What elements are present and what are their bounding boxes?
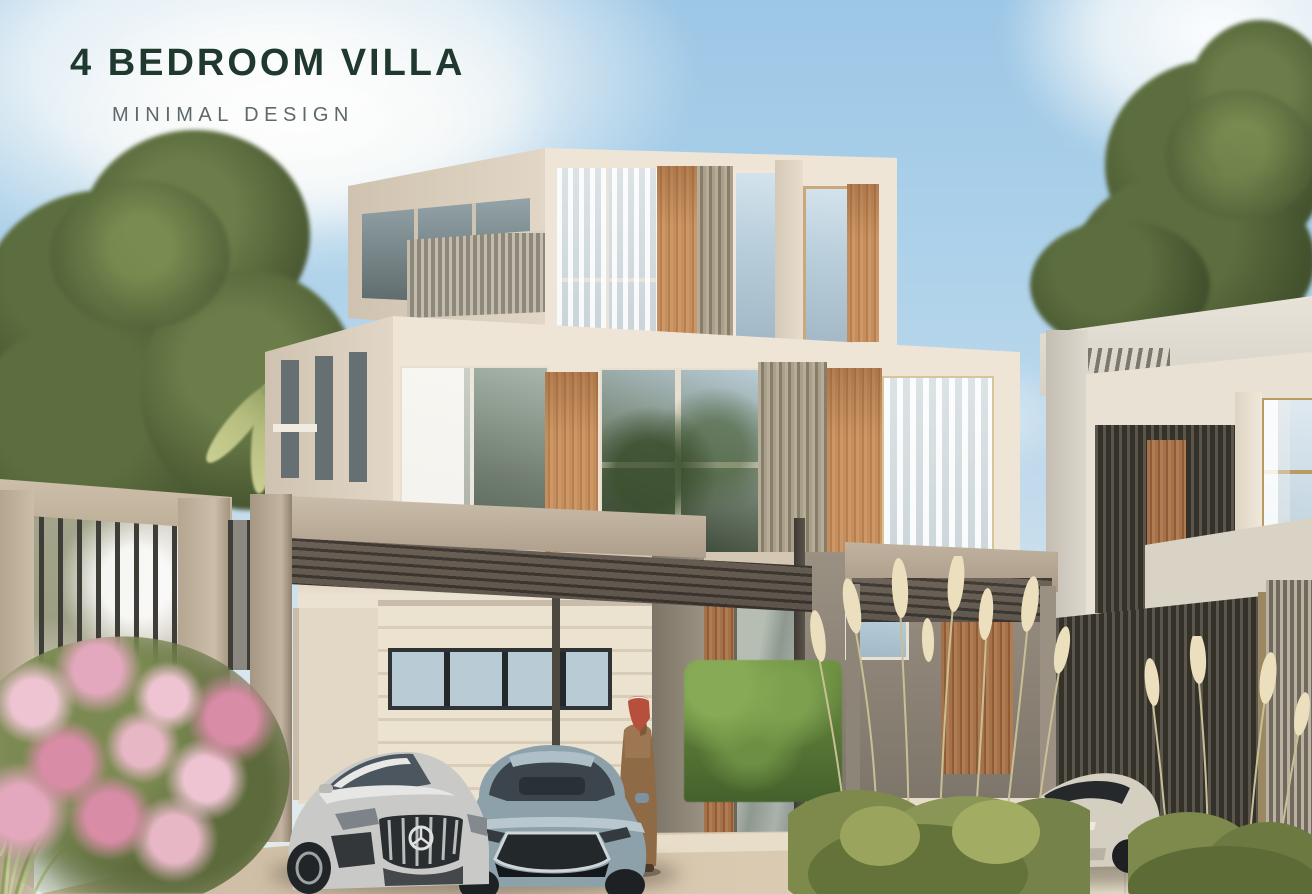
page-subtitle: MINIMAL DESIGN: [112, 104, 354, 127]
pampas-mounds: [1128, 812, 1312, 894]
architectural-render: 4 BEDROOM VILLA MINIMAL DESIGN: [0, 0, 1312, 894]
page-title: 4 BEDROOM VILLA: [70, 42, 465, 85]
mid-louver-strip: [758, 362, 827, 560]
mazda-grille: [495, 833, 609, 871]
side-window-sill: [273, 424, 317, 432]
side-window-strip: [315, 356, 333, 480]
top-recess-shade: [775, 160, 803, 340]
car-mercedes: [283, 744, 495, 894]
mercedes-grille: [379, 815, 463, 869]
top-window-curtained: [557, 168, 657, 334]
mid-wood-panel-right: [827, 368, 882, 564]
top-wood-panel-right: [847, 184, 879, 342]
villa-top-floor-front: [545, 148, 897, 346]
pampas-plumes: [807, 556, 1073, 675]
garage-clerestory-window: [388, 648, 612, 710]
mazda-mirror-right: [635, 793, 649, 803]
side-window-strip: [281, 360, 299, 478]
top-louver-strip: [697, 166, 733, 338]
mazda-interior: [519, 777, 585, 795]
top-window-corner: [733, 170, 781, 342]
side-window-strip: [349, 352, 367, 482]
pampas-plumes: [1143, 636, 1312, 737]
mercedes-wheel: [287, 842, 331, 894]
roof-terrace-railing: [407, 230, 545, 321]
pampas-grass-right: [1128, 636, 1312, 894]
top-wood-panel: [657, 166, 697, 338]
foliage-highlight: [50, 180, 230, 330]
foliage-highlight: [1165, 90, 1312, 220]
mid-window-sheer: [882, 376, 994, 570]
pampas-mounds: [788, 790, 1090, 894]
pampas-grass: [788, 556, 1090, 894]
mercedes-mirror: [319, 784, 333, 793]
top-window-right: [803, 186, 853, 348]
